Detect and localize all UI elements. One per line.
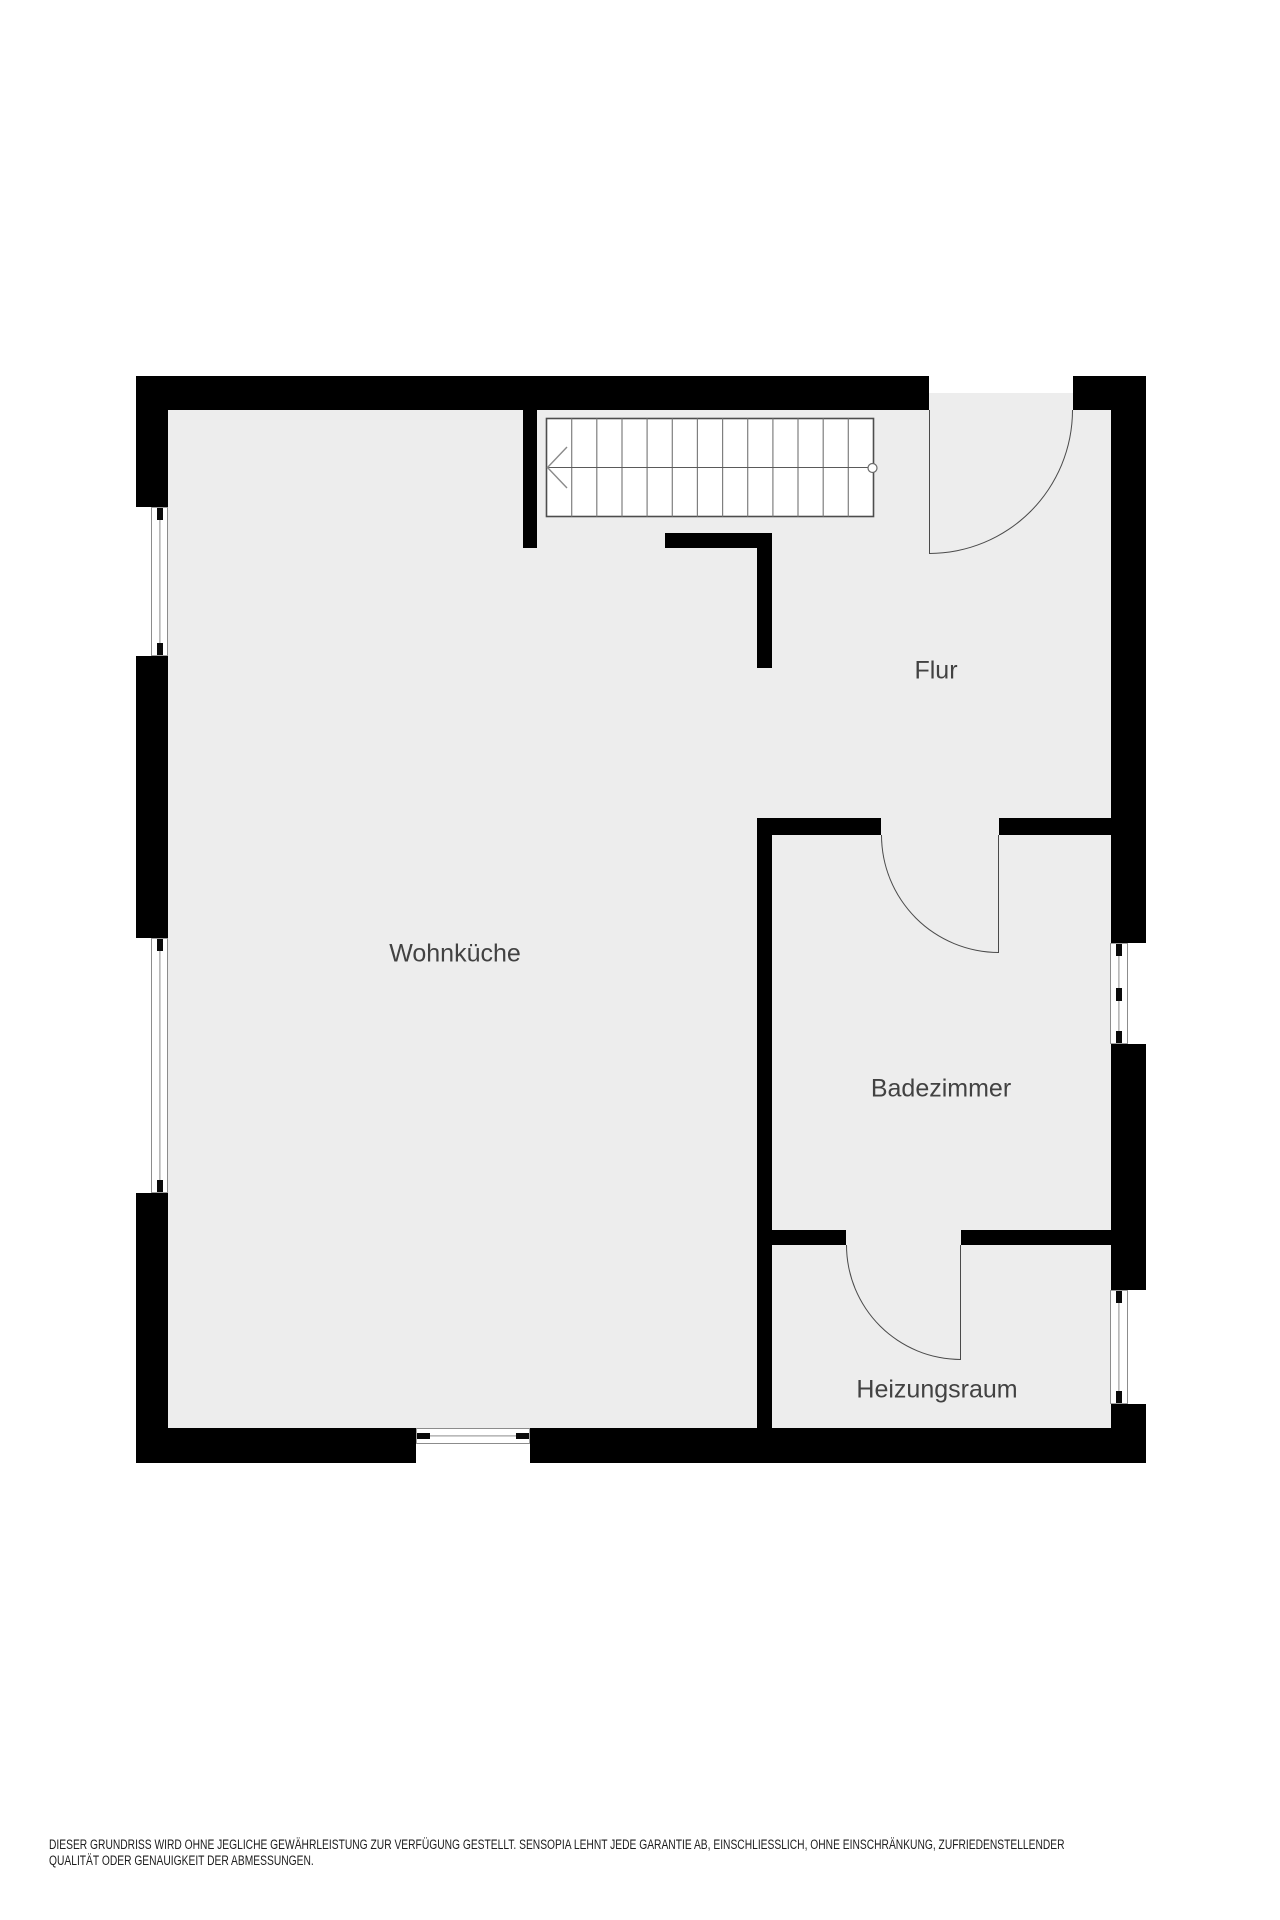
entrance-threshold xyxy=(929,393,1073,410)
wall-left-middle-segment xyxy=(136,656,168,938)
window-heizungsraum xyxy=(1110,1290,1128,1404)
window-bottom xyxy=(416,1428,530,1444)
wall-kitchen-flur-horizontal xyxy=(665,533,772,548)
window-frame-line xyxy=(159,508,160,655)
wall-left-upper-segment xyxy=(136,376,168,507)
wall-left-lower-segment xyxy=(136,1193,168,1463)
window-left-upper xyxy=(151,507,168,656)
staircase xyxy=(540,413,885,525)
room-label-badezimmer: Badezimmer xyxy=(871,1075,1011,1104)
window-post xyxy=(157,643,163,655)
window-frame-line xyxy=(159,939,160,1192)
wall-flur-bad-right xyxy=(999,818,1111,835)
wall-bad-heiz-right xyxy=(961,1230,1111,1245)
room-label-flur: Flur xyxy=(914,657,957,686)
room-label-heizungsraum: Heizungsraum xyxy=(856,1376,1017,1405)
wall-kitchen-flur-vertical xyxy=(757,533,772,668)
window-post xyxy=(417,1433,430,1439)
disclaimer-line-1: DIESER GRUNDRISS WIRD OHNE JEGLICHE GEWÄ… xyxy=(49,1837,1065,1853)
wall-top-left-segment xyxy=(136,376,929,410)
window-post xyxy=(157,1180,163,1192)
wall-stair-side xyxy=(523,410,537,548)
window-post xyxy=(516,1433,529,1439)
wall-bottom-left-segment xyxy=(136,1428,416,1463)
window-frame-line xyxy=(1118,1291,1119,1403)
window-badezimmer xyxy=(1110,943,1128,1044)
wall-core-vertical xyxy=(757,818,772,1428)
disclaimer-line-2: QUALITÄT ODER GENAUIGKEIT DER ABMESSUNGE… xyxy=(49,1853,1065,1869)
window-post xyxy=(157,939,163,951)
wall-bad-heiz-left xyxy=(772,1230,846,1245)
window-post xyxy=(157,508,163,520)
room-label-wohnkueche: Wohnküche xyxy=(389,940,521,969)
window-frame-line xyxy=(417,1435,529,1436)
window-post xyxy=(1116,1391,1122,1403)
wall-right-middle-segment xyxy=(1111,1044,1146,1290)
window-post xyxy=(1116,1291,1122,1303)
window-post xyxy=(1116,944,1122,956)
window-post xyxy=(1116,988,1122,1001)
wall-flur-bad-left xyxy=(757,818,881,835)
wall-bottom-right-segment xyxy=(530,1428,1146,1463)
wall-right-upper-segment xyxy=(1111,376,1146,943)
disclaimer-text: DIESER GRUNDRISS WIRD OHNE JEGLICHE GEWÄ… xyxy=(49,1837,1065,1869)
window-post xyxy=(1116,1031,1122,1043)
stairs-direction-circle xyxy=(868,464,877,473)
floorplan-page: Wohnküche Flur Badezimmer Heizungsraum D… xyxy=(0,0,1280,1920)
window-left-lower xyxy=(151,938,168,1193)
